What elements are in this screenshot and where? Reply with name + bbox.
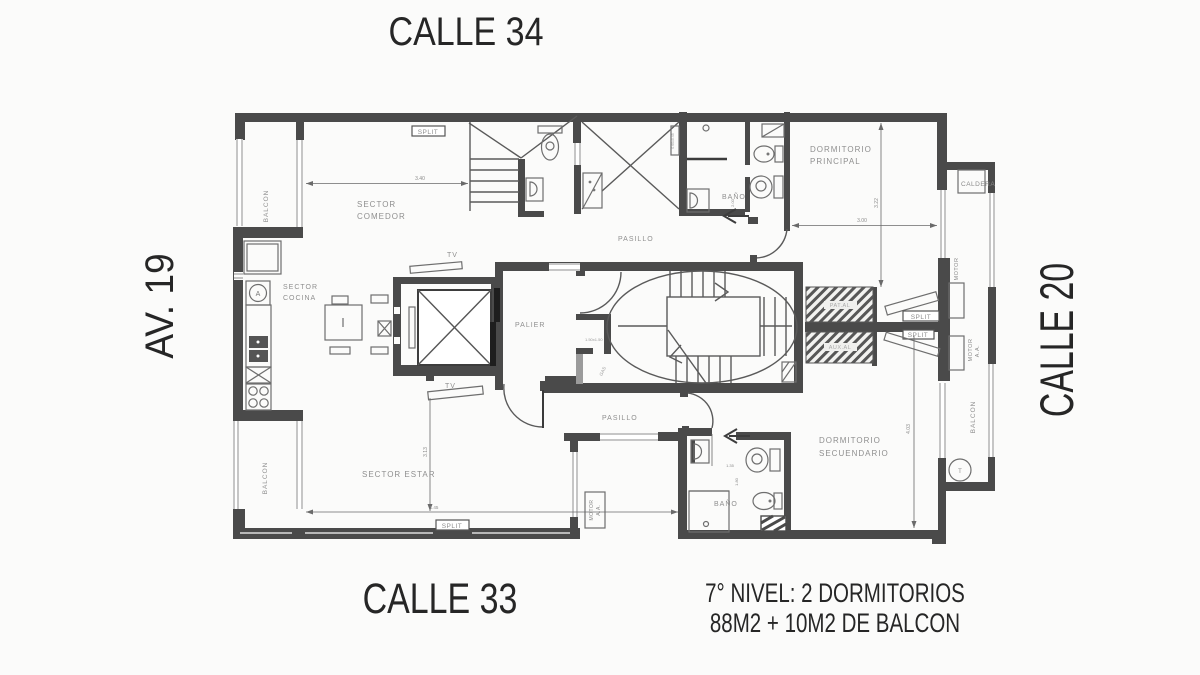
svg-text:PRINCIPAL: PRINCIPAL	[810, 157, 861, 166]
svg-text:SECTOR: SECTOR	[357, 200, 396, 209]
svg-text:DORMITORIO: DORMITORIO	[810, 145, 872, 154]
svg-text:3.22: 3.22	[874, 198, 880, 208]
svg-text:3.13: 3.13	[423, 447, 429, 457]
svg-text:COCINA: COCINA	[283, 295, 316, 302]
svg-text:TV: TV	[445, 383, 456, 390]
svg-text:T: T	[958, 469, 962, 475]
svg-text:PASILLO: PASILLO	[618, 236, 654, 243]
svg-text:A.A.: A.A.	[596, 504, 602, 515]
svg-text:SPLIT: SPLIT	[911, 314, 932, 321]
svg-text:1.45: 1.45	[430, 505, 439, 510]
svg-text:BALCON: BALCON	[262, 462, 269, 495]
svg-text:SPLIT: SPLIT	[442, 523, 463, 530]
svg-text:3.40: 3.40	[415, 176, 425, 182]
svg-text:MOTOR: MOTOR	[589, 499, 595, 520]
svg-text:4.03: 4.03	[906, 424, 912, 434]
svg-text:0.60x0.45: 0.60x0.45	[671, 133, 675, 148]
svg-text:3.00: 3.00	[857, 218, 867, 224]
svg-text:BALCON: BALCON	[970, 401, 977, 434]
svg-text:1.50x1.50: 1.50x1.50	[585, 337, 603, 342]
svg-text:MOTOR: MOTOR	[968, 339, 974, 362]
svg-text:CALLE 33: CALLE 33	[363, 575, 518, 623]
svg-text:7° NIVEL: 2 DORMITORIOS: 7° NIVEL: 2 DORMITORIOS	[705, 578, 965, 608]
svg-text:BALCON: BALCON	[263, 190, 270, 223]
svg-text:A.A.: A.A.	[975, 345, 981, 357]
svg-text:1.35: 1.35	[726, 463, 735, 468]
svg-text:SPLIT: SPLIT	[418, 129, 439, 136]
svg-text:CALLE 20: CALLE 20	[1031, 263, 1084, 417]
svg-text:A: A	[256, 291, 261, 298]
svg-text:AUX.AL: AUX.AL	[829, 345, 852, 351]
svg-text:SECUENDARIO: SECUENDARIO	[819, 449, 889, 458]
svg-text:DORMITORIO: DORMITORIO	[819, 436, 881, 445]
svg-text:PASILLO: PASILLO	[602, 415, 638, 422]
svg-text:1.80: 1.80	[734, 477, 739, 486]
svg-text:BAÑO: BAÑO	[714, 499, 738, 508]
svg-text:PAT.AL: PAT.AL	[830, 303, 851, 309]
svg-text:CALDERA: CALDERA	[961, 181, 995, 188]
svg-text:AV. 19: AV. 19	[138, 253, 183, 358]
svg-text:TV: TV	[447, 252, 458, 259]
svg-text:BAÑO: BAÑO	[722, 192, 746, 201]
svg-text:SECTOR ESTAR: SECTOR ESTAR	[362, 470, 436, 479]
svg-text:PALIER: PALIER	[515, 322, 545, 329]
svg-text:COMEDOR: COMEDOR	[357, 212, 406, 221]
svg-text:CALLE 34: CALLE 34	[389, 8, 544, 53]
svg-text:88M2 + 10M2 DE BALCON: 88M2 + 10M2 DE BALCON	[710, 608, 960, 638]
svg-text:SECTOR: SECTOR	[283, 284, 318, 291]
svg-text:MOTOR: MOTOR	[954, 258, 960, 281]
svg-text:SPLIT: SPLIT	[908, 332, 929, 339]
